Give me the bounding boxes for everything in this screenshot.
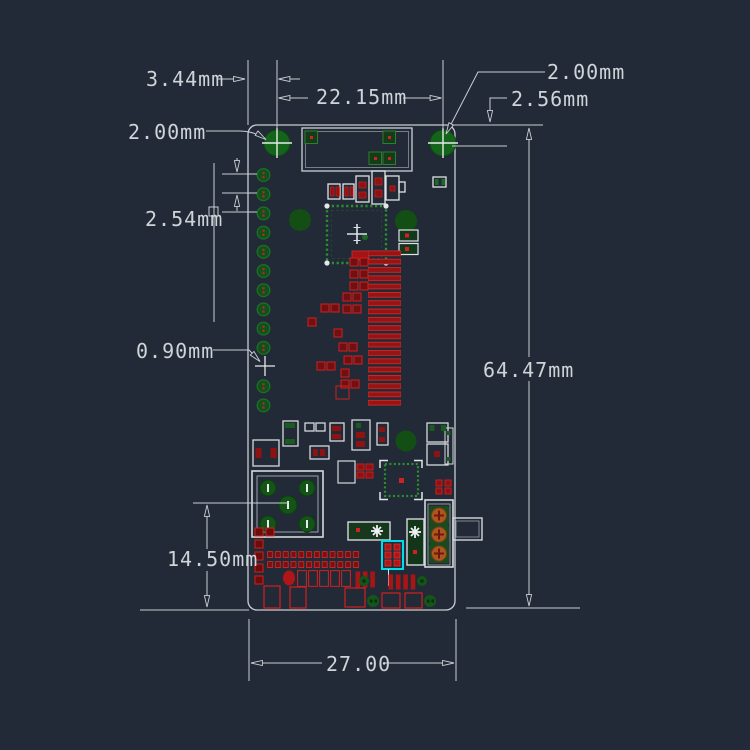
dim-label-2-54mm: 2.54mm	[145, 207, 223, 231]
component-row-mid	[253, 420, 453, 466]
dim-label-2-56mm: 2.56mm	[511, 87, 589, 111]
switch-lever-tab	[453, 518, 482, 540]
pin-header-left	[255, 165, 275, 416]
dim-label-3-44mm: 3.44mm	[146, 67, 224, 91]
dim-label-27-00: 27.00	[326, 652, 391, 676]
via-large	[289, 209, 311, 231]
red-pad-scatter	[308, 258, 368, 399]
dim-label-0-90mm: 0.90mm	[136, 339, 214, 363]
dim-label-2-00mm-left: 2.00mm	[128, 120, 206, 144]
antenna-area	[302, 128, 412, 171]
mounting-hole-left	[262, 128, 292, 158]
qfn-chip-footprint	[380, 461, 422, 500]
small-green-components	[399, 230, 418, 255]
cad-canvas: 3.44mm 22.15mm 2.00mm 2.00mm 2.56mm 2.54…	[0, 0, 750, 750]
dim-label-2-00mm-right: 2.00mm	[547, 60, 625, 84]
pcb-board	[248, 125, 482, 610]
corner-mark	[324, 203, 329, 208]
pcb-dimension-drawing: 3.44mm 22.15mm 2.00mm 2.00mm 2.56mm 2.54…	[0, 0, 750, 750]
usb-connector	[252, 471, 323, 537]
star-component-vertical	[407, 519, 424, 565]
dim-label-64-47mm: 64.47mm	[483, 358, 574, 382]
via-large	[396, 431, 417, 452]
star-component-horizontal	[348, 522, 390, 540]
dim-label-14-50mm: 14.50mm	[167, 547, 258, 571]
mounting-hole-right	[428, 128, 458, 158]
dim-label-22-15mm: 22.15mm	[316, 85, 407, 109]
antenna-pads	[305, 131, 396, 165]
usb-shell-holes	[260, 480, 315, 532]
center-cross-icon	[347, 224, 367, 244]
via-large	[395, 210, 417, 232]
component	[338, 461, 355, 483]
power-switch	[425, 500, 482, 567]
